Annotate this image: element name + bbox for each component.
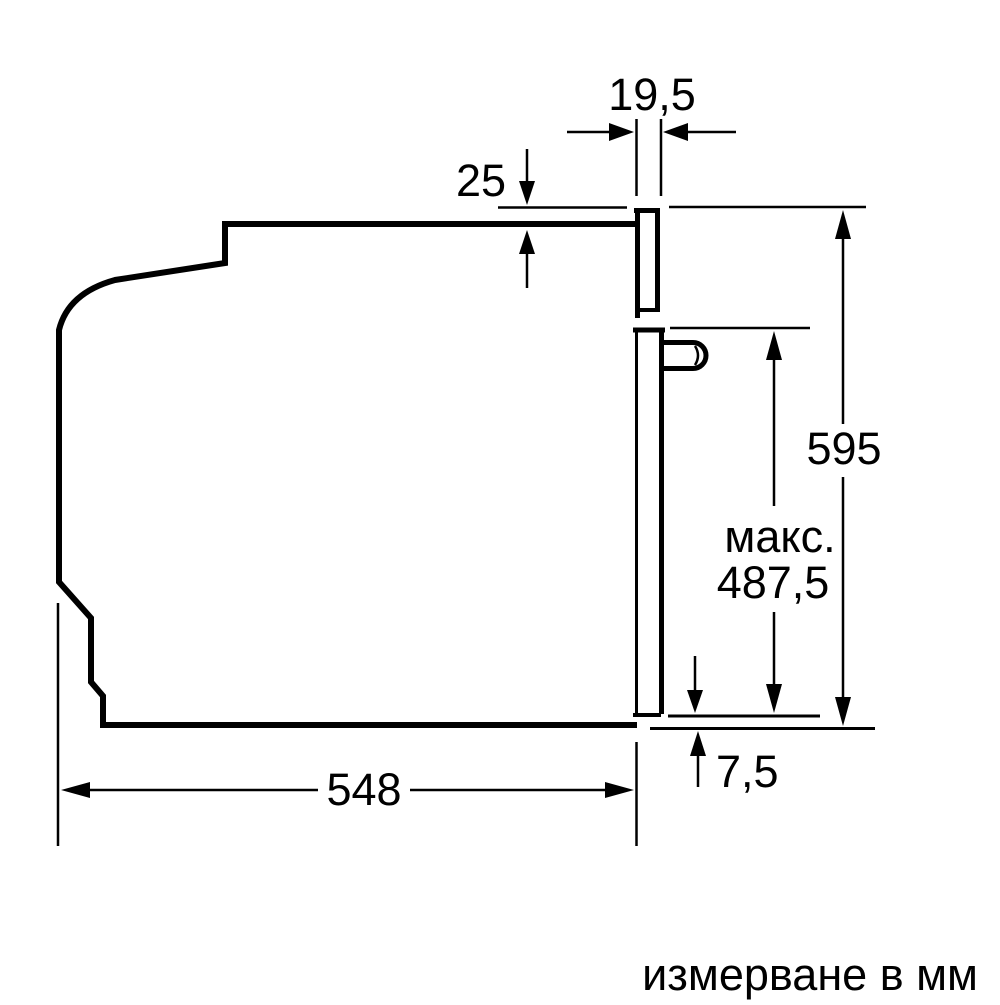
dimension-door-thickness: 19,5 <box>567 69 736 196</box>
door-handle <box>663 343 706 369</box>
arrowhead-up-icon <box>766 331 782 360</box>
arrowhead-up-icon <box>690 731 706 756</box>
arrowhead-down-icon <box>687 690 703 713</box>
dimension-label-548: 548 <box>326 764 401 815</box>
oven-installation-diagram: 19,5 25 595 макс. 487,5 <box>0 0 1000 1000</box>
dimension-drawing-page: 19,5 25 595 макс. 487,5 <box>0 0 1000 1000</box>
unit-note: измерване в мм <box>642 949 978 1000</box>
arrowhead-up-icon <box>519 230 535 254</box>
arrowhead-down-icon <box>835 697 851 726</box>
arrowhead-down-icon <box>519 181 535 205</box>
dimension-label-25: 25 <box>456 155 506 206</box>
dimension-label-max-prefix: макс. <box>724 511 835 562</box>
dimension-bottom-offset: 7,5 <box>668 656 820 797</box>
arrowhead-left-icon <box>663 123 688 141</box>
arrowhead-down-icon <box>766 684 782 713</box>
arrowhead-right-icon <box>605 782 634 798</box>
arrowhead-up-icon <box>835 210 851 239</box>
dimension-label-487-5: 487,5 <box>717 557 830 608</box>
arrowhead-right-icon <box>609 123 634 141</box>
oven-body-outline <box>59 224 637 725</box>
dimension-label-19-5: 19,5 <box>608 69 696 120</box>
dimension-label-7-5: 7,5 <box>716 746 779 797</box>
door-handle-cap-line <box>695 346 698 365</box>
dimension-top-clearance: 25 <box>456 149 627 288</box>
dimension-label-595: 595 <box>806 423 881 474</box>
dimension-appliance-height: 595 <box>650 207 882 729</box>
arrowhead-left-icon <box>61 782 90 798</box>
dimension-max-door-open: макс. 487,5 <box>670 328 836 713</box>
